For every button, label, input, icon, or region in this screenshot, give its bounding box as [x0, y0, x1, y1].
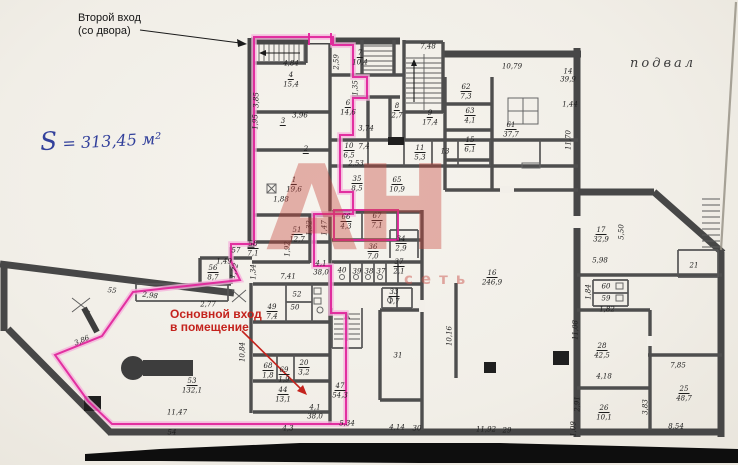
second-entrance-line2: (со двора) — [78, 25, 141, 38]
scanned-floor-plan-page: 415,432119,65112,7587,1568,7710,4614,682… — [0, 0, 738, 465]
agency-watermark-letters: АН — [266, 158, 448, 258]
second-entrance-note: Второй вход (со двора) — [78, 12, 141, 38]
agency-watermark-text: сеть — [404, 270, 473, 288]
floor-label: подвал — [630, 56, 696, 71]
second-entrance-line1: Второй вход — [78, 12, 141, 25]
handwritten-s: S — [39, 126, 58, 156]
main-entrance-line2: в помещение — [170, 321, 262, 334]
main-entrance-note: Основной вход в помещение — [170, 308, 262, 334]
column-circle — [121, 356, 145, 380]
second-entrance-arrow-icon — [140, 30, 247, 47]
handwritten-value: = 313,45 м² — [62, 129, 162, 153]
